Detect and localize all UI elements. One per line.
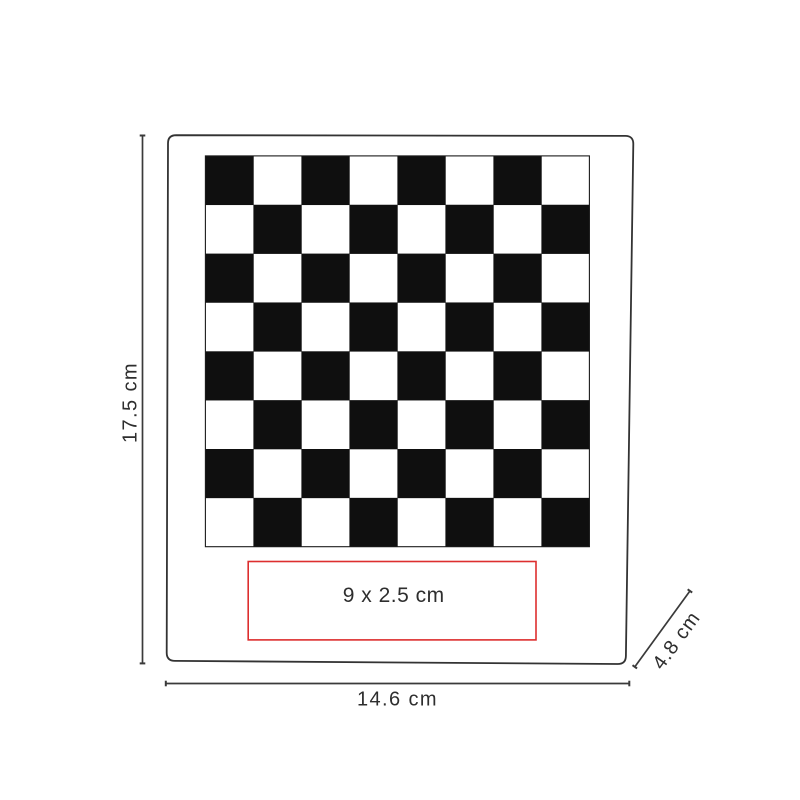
svg-text:9 x 2.5 cm: 9 x 2.5 cm [343, 584, 445, 607]
svg-text:4.8 cm: 4.8 cm [648, 607, 705, 673]
svg-text:14.6 cm: 14.6 cm [357, 689, 438, 711]
svg-text:17.5 cm: 17.5 cm [120, 362, 142, 443]
